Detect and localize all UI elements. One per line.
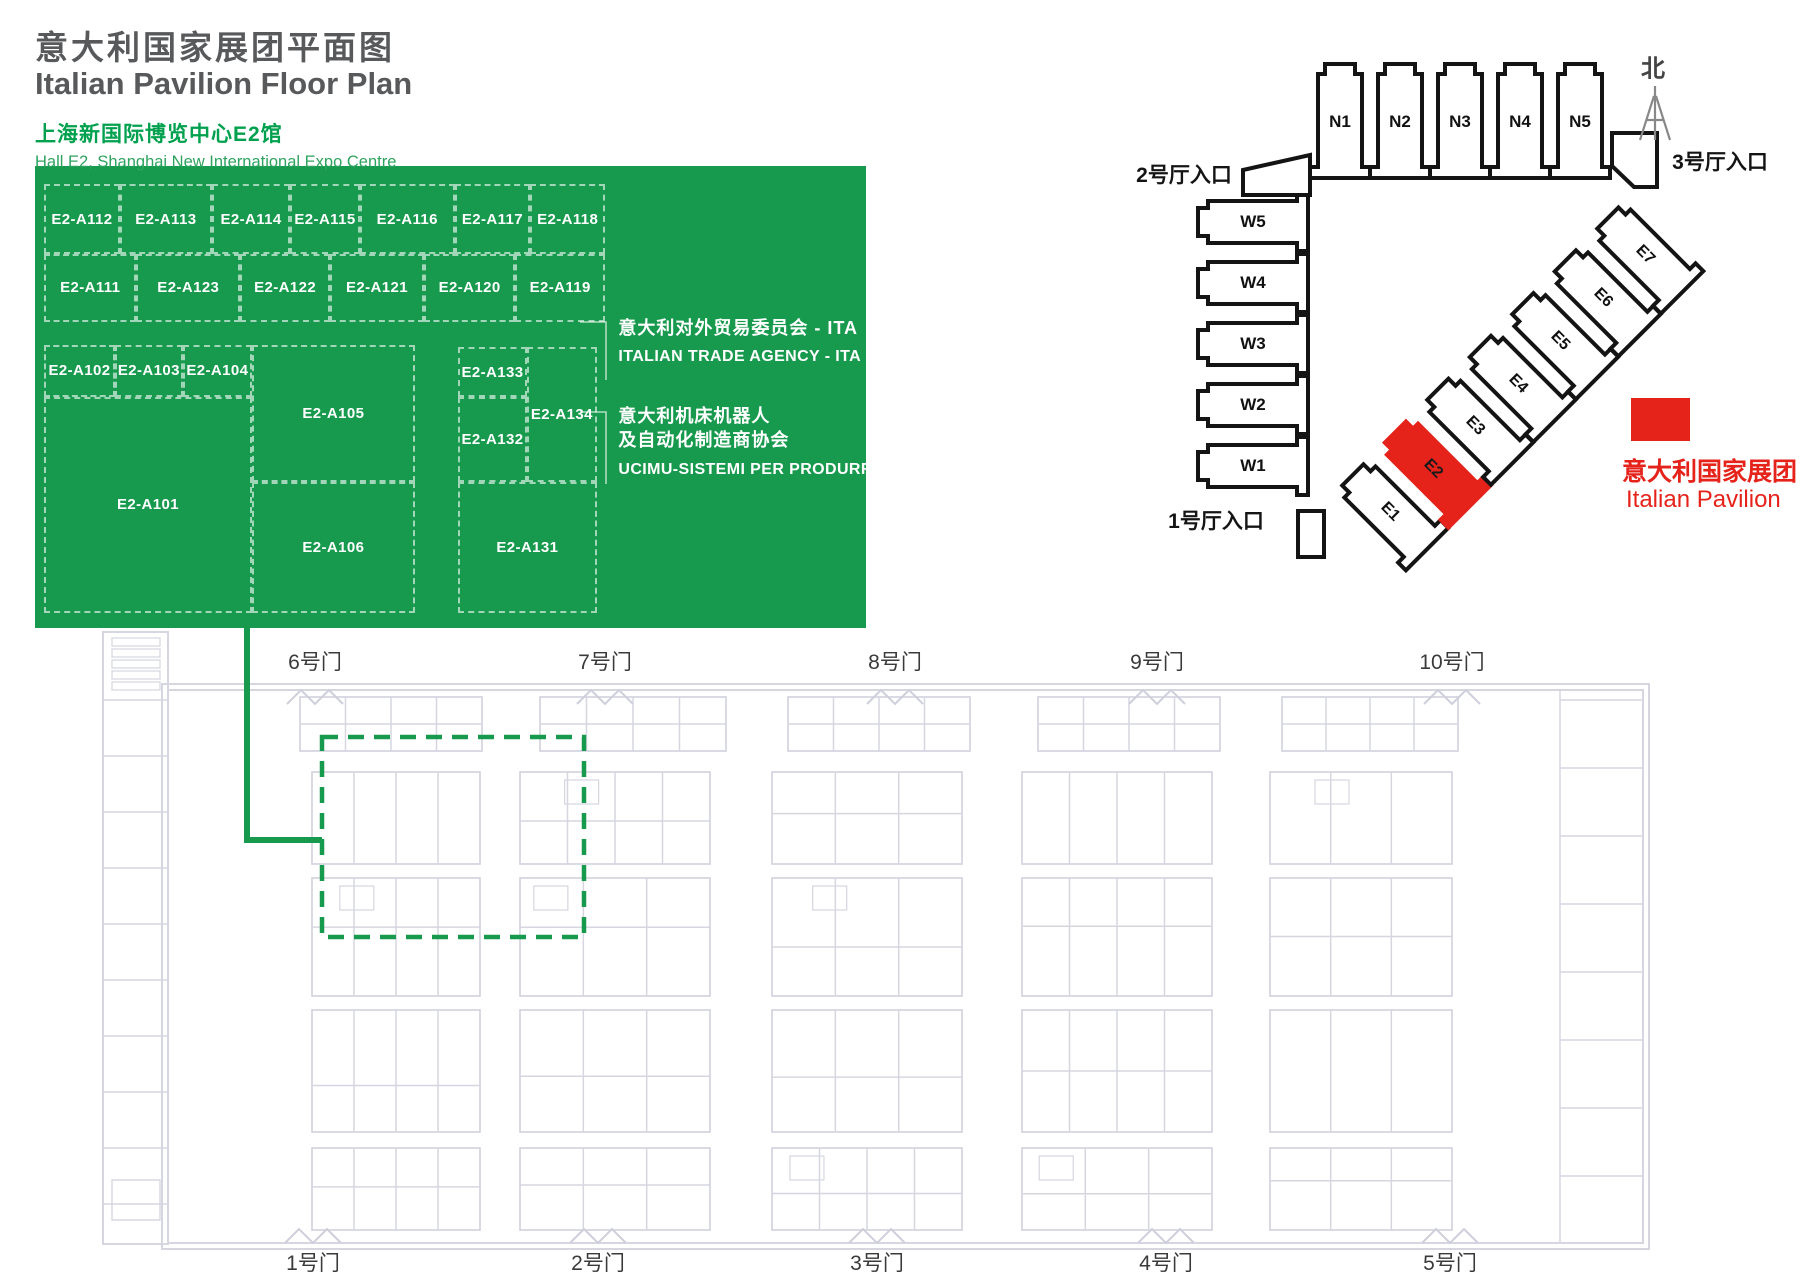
gate-top-label-9: 9号门 [1130,646,1184,676]
booth-E2-A119: E2-A119 [515,254,605,322]
booth-E2-A123: E2-A123 [136,254,240,322]
gate-top-label-8: 8号门 [868,646,922,676]
booth-E2-A131: E2-A131 [458,482,597,613]
booth-label: E2-A118 [537,211,598,228]
booth-E2-A105: E2-A105 [252,345,415,482]
hall-label-E5: E5 [1547,328,1574,355]
gate-bottom-label-1: 1号门 [286,1247,340,1277]
gate-top-label-7: 7号门 [578,646,632,676]
hall-label-W2: W2 [1240,395,1266,415]
booth-label: E2-A119 [530,279,591,296]
booth-E2-A118: E2-A118 [530,184,605,254]
gate-bottom-label-2: 2号门 [571,1247,625,1277]
booth-label: E2-A101 [117,496,179,513]
booth-label: E2-A113 [135,211,196,228]
booth-E2-A111: E2-A111 [44,254,136,322]
annotation-ucimu-cn2: 及自动化制造商协会 [618,428,884,452]
booth-E2-A106: E2-A106 [252,482,415,613]
page-subtitle-cn: 上海新国际博览中心E2馆 [35,118,412,148]
north-compass-icon [1640,86,1670,140]
gate-bottom-label-5: 5号门 [1423,1247,1477,1277]
booth-label: E2-A121 [346,279,408,296]
entrance-label-hall2: 2号厅入口 [1136,159,1232,189]
booth-label: E2-A120 [439,279,501,296]
booth-label: E2-A131 [496,539,558,556]
booth-E2-A101: E2-A101 [44,397,252,613]
booth-label: E2-A105 [302,405,364,422]
booth-E2-A114: E2-A114 [212,184,290,254]
legend-label-cn: 意大利国家展团 [1622,452,1797,488]
annotation-ucimu-cn1: 意大利机床机器人 [618,404,884,428]
entrance-shape-hall3 [1612,133,1657,187]
booth-E2-A115: E2-A115 [290,184,360,254]
hall-label-N3: N3 [1449,112,1471,132]
hall-label-E6: E6 [1589,285,1616,312]
hall-label-E4: E4 [1504,370,1531,397]
booth-label: E2-A102 [48,362,110,379]
booth-label: E2-A132 [461,431,523,448]
hall-label-W5: W5 [1240,212,1266,232]
booth-E2-A104: E2-A104 [183,345,252,397]
annotation-ita-en: ITALIAN TRADE AGENCY - ITA [618,348,861,366]
annotation-ita: 意大利对外贸易委员会 - ITA ITALIAN TRADE AGENCY - … [618,316,861,366]
gate-top-label-10: 10号门 [1419,646,1484,676]
gate-bottom-label-3: 3号门 [850,1247,904,1277]
page-title-en: Italian Pavilion Floor Plan [35,66,412,102]
booth-label: E2-A114 [220,211,281,228]
legend-swatch [1631,398,1690,441]
booth-label: E2-A104 [186,362,248,379]
booth-E2-A132: E2-A132 [458,397,527,482]
annotation-ita-cn: 意大利对外贸易委员会 - ITA [618,316,861,340]
entrance-label-hall1: 1号厅入口 [1168,505,1264,535]
booth-label: E2-A134 [531,406,593,423]
page: 意大利国家展团平面图 Italian Pavilion Floor Plan 上… [0,0,1820,1280]
header: 意大利国家展团平面图 Italian Pavilion Floor Plan 上… [35,30,412,172]
booth-E2-A121: E2-A121 [330,254,424,322]
booth-E2-A122: E2-A122 [240,254,330,322]
hall-label-E1: E1 [1377,499,1404,526]
booth-E2-A102: E2-A102 [44,345,115,397]
entrance-shape-hall2 [1243,155,1310,195]
hall-label-E7: E7 [1632,242,1659,269]
hall-label-N5: N5 [1569,112,1591,132]
annotation-ucimu: 意大利机床机器人 及自动化制造商协会 UCIMU-SISTEMI PER PRO… [618,404,884,479]
entrance-shape-hall1 [1298,511,1324,557]
booth-E2-A103: E2-A103 [115,345,183,397]
hall-label-W1: W1 [1240,456,1266,476]
booth-label: E2-A117 [462,211,523,228]
hall-label-E2: E2 [1419,456,1446,483]
booth-label: E2-A112 [51,211,112,228]
entrance-label-hall3: 3号厅入口 [1672,146,1768,176]
booth-E2-A112: E2-A112 [44,184,120,254]
pavilion-plan: 意大利对外贸易委员会 - ITA ITALIAN TRADE AGENCY - … [35,166,866,628]
booth-E2-A133: E2-A133 [458,347,527,397]
booth-E2-A134: E2-A134 [527,347,597,482]
gate-top-label-6: 6号门 [288,646,342,676]
hall-label-W4: W4 [1240,273,1266,293]
legend-label-en: Italian Pavilion [1626,486,1781,514]
booth-label: E2-A106 [302,539,364,556]
booth-E2-A117: E2-A117 [455,184,531,254]
booth-label: E2-A123 [157,279,219,296]
booth-label: E2-A103 [118,362,180,379]
gate-bottom-label-4: 4号门 [1139,1247,1193,1277]
hall-floorplan-linework [103,632,1649,1249]
booth-label: E2-A115 [294,211,355,228]
hall-label-E3: E3 [1462,413,1489,440]
booth-label: E2-A133 [461,364,523,381]
hall-label-N4: N4 [1509,112,1531,132]
booth-E2-A116: E2-A116 [360,184,455,254]
booth-E2-A113: E2-A113 [120,184,212,254]
page-title-cn: 意大利国家展团平面图 [35,30,412,66]
hall-label-W3: W3 [1240,334,1266,354]
annotation-ucimu-en: UCIMU-SISTEMI PER PRODURRE [618,461,884,479]
page-subtitle-en: Hall E2, Shanghai New International Expo… [35,153,412,172]
north-label: 北 [1641,49,1665,84]
hall-label-N2: N2 [1389,112,1411,132]
booth-E2-A120: E2-A120 [424,254,515,322]
booth-label: E2-A116 [377,211,438,228]
hall-label-N1: N1 [1329,112,1351,132]
booth-label: E2-A111 [60,279,120,296]
pavilion-highlight-rect [322,737,584,937]
booth-label: E2-A122 [254,279,316,296]
